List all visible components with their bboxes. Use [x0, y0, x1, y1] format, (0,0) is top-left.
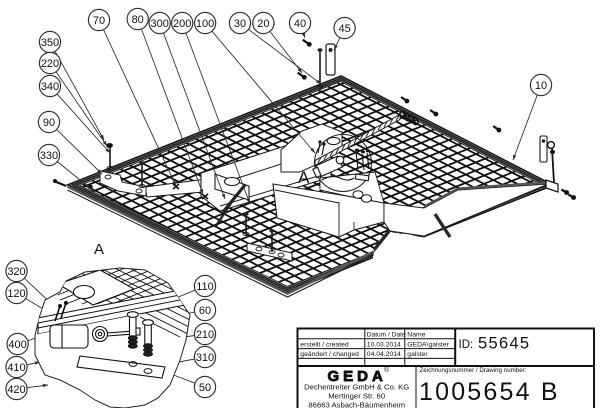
svg-text:10.03.2014: 10.03.2014 [367, 341, 401, 348]
svg-text:410: 410 [7, 362, 25, 374]
svg-text:210: 210 [196, 329, 214, 341]
svg-text:220: 220 [41, 58, 59, 70]
svg-text:Dechentreiter GmbH & Co. KG: Dechentreiter GmbH & Co. KG [304, 383, 409, 392]
svg-text:30: 30 [234, 18, 246, 30]
svg-text:04.04.2014: 04.04.2014 [367, 351, 401, 358]
svg-text:400: 400 [8, 339, 26, 351]
svg-text:300: 300 [151, 18, 169, 30]
svg-text:1005654 B: 1005654 B [419, 378, 560, 406]
svg-text:20: 20 [257, 18, 269, 30]
svg-text:erstellt / created: erstellt / created [300, 341, 349, 348]
svg-text:Datum / Date: Datum / Date [367, 332, 406, 339]
svg-text:GEDA\galster: GEDA\galster [407, 341, 449, 348]
svg-text:galster: galster [407, 351, 428, 358]
svg-text:ID:: ID: [459, 339, 474, 351]
svg-text:120: 120 [7, 288, 25, 300]
svg-text:340: 340 [41, 81, 59, 93]
svg-text:420: 420 [7, 384, 25, 396]
svg-text:Name: Name [407, 332, 425, 339]
svg-text:90: 90 [43, 117, 55, 129]
svg-text:10: 10 [535, 80, 547, 92]
svg-text:350: 350 [41, 37, 59, 49]
svg-text:Mertinger Str. 60: Mertinger Str. 60 [328, 392, 385, 401]
svg-text:200: 200 [173, 18, 191, 30]
svg-text:A: A [298, 168, 310, 187]
svg-text:Zeichnungsnummer / Drawing num: Zeichnungsnummer / Drawing number: [420, 367, 527, 374]
svg-text:55645: 55645 [478, 335, 530, 353]
svg-text:100: 100 [196, 18, 214, 30]
svg-text:45: 45 [338, 23, 350, 35]
svg-text:320: 320 [7, 266, 25, 278]
svg-text:70: 70 [93, 15, 105, 27]
svg-text:50: 50 [199, 382, 211, 394]
svg-text:A: A [94, 241, 104, 258]
svg-text:80: 80 [132, 14, 144, 26]
svg-text:110: 110 [196, 281, 214, 293]
svg-text:60: 60 [199, 305, 211, 317]
svg-text:86663 Asbach-Bäumenheim: 86663 Asbach-Bäumenheim [308, 401, 405, 409]
svg-text:330: 330 [40, 150, 58, 162]
svg-text:310: 310 [196, 352, 214, 364]
svg-text:40: 40 [294, 18, 306, 30]
svg-text:geändert / changed: geändert / changed [300, 351, 359, 358]
svg-text:®: ® [384, 366, 390, 374]
